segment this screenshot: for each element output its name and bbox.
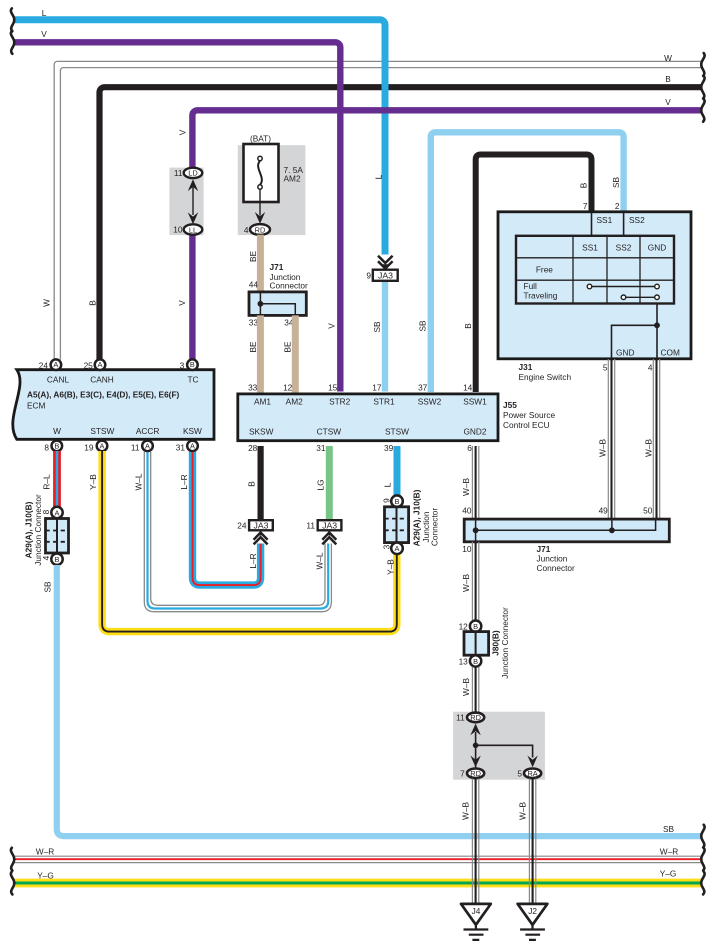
svg-text:STSW: STSW: [385, 427, 409, 437]
svg-text:11: 11: [456, 713, 465, 723]
svg-text:W–L: W–L: [315, 552, 325, 569]
svg-text:RA: RA: [527, 769, 537, 778]
svg-text:14: 14: [463, 383, 473, 393]
svg-text:Engine Switch: Engine Switch: [519, 372, 572, 382]
svg-text:J80(B): J80(B): [491, 630, 501, 656]
svg-text:A29(A), J10(B): A29(A), J10(B): [412, 489, 422, 546]
svg-text:11: 11: [174, 168, 183, 178]
svg-text:SSW2: SSW2: [418, 397, 442, 407]
svg-text:B: B: [579, 182, 589, 188]
svg-text:50: 50: [643, 505, 653, 515]
svg-text:SB: SB: [43, 581, 53, 593]
svg-text:J4: J4: [472, 906, 481, 916]
svg-text:V: V: [41, 29, 47, 39]
svg-text:ECM: ECM: [27, 400, 46, 410]
svg-text:A: A: [53, 360, 58, 369]
svg-text:B: B: [473, 657, 478, 666]
svg-text:Control ECU: Control ECU: [503, 420, 550, 430]
svg-text:SB: SB: [372, 321, 382, 333]
svg-text:W–R: W–R: [36, 846, 54, 856]
svg-text:Connector: Connector: [270, 281, 309, 291]
svg-text:(BAT): (BAT): [250, 133, 271, 143]
svg-text:LD: LD: [188, 169, 197, 178]
svg-text:W: W: [53, 426, 61, 436]
svg-text:B: B: [54, 442, 59, 451]
svg-text:Junction Connector: Junction Connector: [33, 494, 43, 566]
svg-text:11: 11: [306, 520, 315, 530]
svg-text:L: L: [383, 482, 393, 487]
svg-text:ACCR: ACCR: [136, 426, 160, 436]
svg-text:A: A: [395, 544, 400, 553]
svg-text:L–R: L–R: [248, 553, 258, 568]
svg-text:LL: LL: [189, 225, 197, 234]
svg-text:SKSW: SKSW: [249, 427, 274, 437]
svg-text:W: W: [42, 299, 52, 307]
svg-text:W–B: W–B: [598, 439, 608, 457]
svg-text:Full: Full: [524, 281, 538, 291]
svg-text:3: 3: [382, 544, 392, 549]
svg-text:STR1: STR1: [373, 397, 395, 407]
svg-text:GND2: GND2: [463, 427, 486, 437]
svg-text:44: 44: [249, 280, 259, 290]
svg-text:49: 49: [599, 505, 609, 515]
svg-text:SS2: SS2: [616, 242, 632, 252]
svg-text:JA3: JA3: [254, 520, 269, 530]
svg-text:B: B: [55, 555, 60, 564]
svg-text:12: 12: [459, 622, 469, 632]
svg-text:4: 4: [648, 362, 653, 372]
svg-text:10: 10: [173, 225, 183, 235]
svg-text:11: 11: [131, 443, 140, 453]
svg-text:W–B: W–B: [461, 478, 471, 496]
svg-text:B: B: [473, 622, 478, 631]
svg-text:Junction Connector: Junction Connector: [500, 607, 510, 679]
svg-text:J55: J55: [503, 400, 517, 410]
svg-text:4: 4: [244, 225, 249, 235]
svg-text:Y–B: Y–B: [88, 474, 98, 490]
svg-text:GND: GND: [648, 242, 666, 252]
svg-text:L: L: [42, 8, 47, 18]
svg-text:JA3: JA3: [378, 271, 393, 281]
svg-text:A: A: [55, 508, 60, 517]
svg-text:KSW: KSW: [183, 426, 202, 436]
svg-text:V: V: [177, 300, 187, 306]
svg-text:J31: J31: [519, 362, 533, 372]
svg-text:Connector: Connector: [430, 508, 440, 547]
svg-text:9: 9: [382, 498, 392, 503]
svg-text:R–L: R–L: [42, 474, 52, 490]
svg-text:TC: TC: [187, 374, 198, 384]
svg-text:W–B: W–B: [461, 574, 471, 592]
svg-text:B: B: [247, 481, 257, 487]
svg-text:SB: SB: [611, 177, 621, 189]
svg-text:33: 33: [248, 383, 258, 393]
svg-text:28: 28: [248, 443, 258, 453]
svg-text:AM2: AM2: [284, 174, 301, 184]
svg-text:13: 13: [459, 656, 469, 666]
svg-text:V: V: [327, 323, 337, 329]
svg-text:W–B: W–B: [461, 802, 471, 820]
svg-text:Traveling: Traveling: [524, 290, 558, 300]
svg-text:25: 25: [84, 360, 94, 370]
svg-text:A: A: [190, 442, 195, 451]
svg-text:Y–B: Y–B: [386, 559, 396, 575]
svg-text:A: A: [98, 360, 103, 369]
svg-text:BE: BE: [283, 341, 293, 353]
svg-text:RD: RD: [470, 769, 481, 778]
svg-text:SS1: SS1: [582, 242, 598, 252]
svg-text:W–L: W–L: [134, 473, 144, 490]
svg-text:A5(A), A6(B), E3(C), E4(D), E5: A5(A), A6(B), E3(C), E4(D), E5(E), E6(F): [27, 389, 180, 399]
svg-text:JA3: JA3: [322, 520, 337, 530]
svg-text:Y–G: Y–G: [37, 871, 54, 881]
svg-text:L–R: L–R: [179, 474, 189, 489]
svg-text:W–B: W–B: [518, 802, 528, 820]
svg-text:STSW: STSW: [90, 426, 114, 436]
svg-text:8: 8: [44, 443, 49, 453]
svg-text:W–R: W–R: [660, 846, 678, 856]
svg-text:SB: SB: [418, 320, 428, 332]
svg-text:B: B: [395, 497, 400, 506]
svg-text:Power Source: Power Source: [503, 410, 555, 420]
svg-text:J71: J71: [537, 544, 551, 554]
svg-text:A: A: [100, 442, 105, 451]
svg-text:Junction: Junction: [537, 553, 568, 563]
svg-text:15: 15: [328, 383, 338, 393]
svg-text:Free: Free: [536, 264, 553, 274]
svg-text:7: 7: [583, 201, 588, 211]
svg-text:B: B: [463, 323, 473, 329]
svg-text:5: 5: [517, 769, 522, 779]
svg-text:SS1: SS1: [597, 215, 613, 225]
svg-text:B: B: [665, 74, 671, 84]
svg-text:24: 24: [237, 520, 247, 530]
svg-text:31: 31: [316, 443, 326, 453]
svg-text:A29(A), J10(B): A29(A), J10(B): [23, 501, 33, 558]
svg-text:19: 19: [84, 443, 94, 453]
svg-text:2: 2: [615, 201, 620, 211]
svg-text:31: 31: [176, 443, 186, 453]
svg-text:Y–G: Y–G: [660, 869, 677, 879]
svg-text:17: 17: [372, 383, 382, 393]
svg-text:J71: J71: [270, 262, 284, 272]
svg-text:W: W: [664, 53, 672, 63]
svg-text:A: A: [145, 442, 150, 451]
svg-text:V: V: [177, 129, 187, 135]
svg-text:RD: RD: [255, 225, 266, 234]
svg-text:STR2: STR2: [329, 397, 351, 407]
svg-text:40: 40: [462, 505, 472, 515]
svg-text:L: L: [373, 174, 383, 179]
svg-text:V: V: [665, 97, 671, 107]
svg-text:CANH: CANH: [90, 374, 114, 384]
svg-text:RD: RD: [470, 713, 481, 722]
svg-text:BE: BE: [248, 341, 258, 353]
svg-text:24: 24: [39, 360, 49, 370]
svg-text:Connector: Connector: [537, 563, 576, 573]
svg-text:W–B: W–B: [461, 678, 471, 696]
svg-text:B: B: [88, 300, 98, 306]
svg-text:6: 6: [467, 443, 472, 453]
svg-text:SB: SB: [663, 824, 675, 834]
svg-text:AM2: AM2: [286, 397, 303, 407]
svg-text:7: 7: [460, 769, 465, 779]
svg-text:COM: COM: [661, 347, 680, 357]
svg-text:LG: LG: [316, 479, 326, 490]
svg-text:SSW1: SSW1: [463, 397, 487, 407]
svg-text:BE: BE: [248, 250, 258, 262]
svg-text:5: 5: [603, 362, 608, 372]
svg-text:B: B: [190, 360, 195, 369]
svg-text:J2: J2: [528, 906, 537, 916]
svg-text:SS2: SS2: [629, 215, 645, 225]
svg-text:GND: GND: [616, 347, 634, 357]
svg-text:AM1: AM1: [254, 397, 271, 407]
svg-text:CANL: CANL: [47, 374, 70, 384]
svg-text:10: 10: [462, 544, 472, 554]
svg-text:39: 39: [384, 443, 394, 453]
svg-text:W–B: W–B: [644, 439, 654, 457]
svg-text:9: 9: [366, 271, 371, 281]
svg-text:12: 12: [283, 383, 293, 393]
svg-text:37: 37: [418, 383, 428, 393]
svg-text:3: 3: [180, 360, 185, 370]
svg-text:CTSW: CTSW: [317, 427, 342, 437]
